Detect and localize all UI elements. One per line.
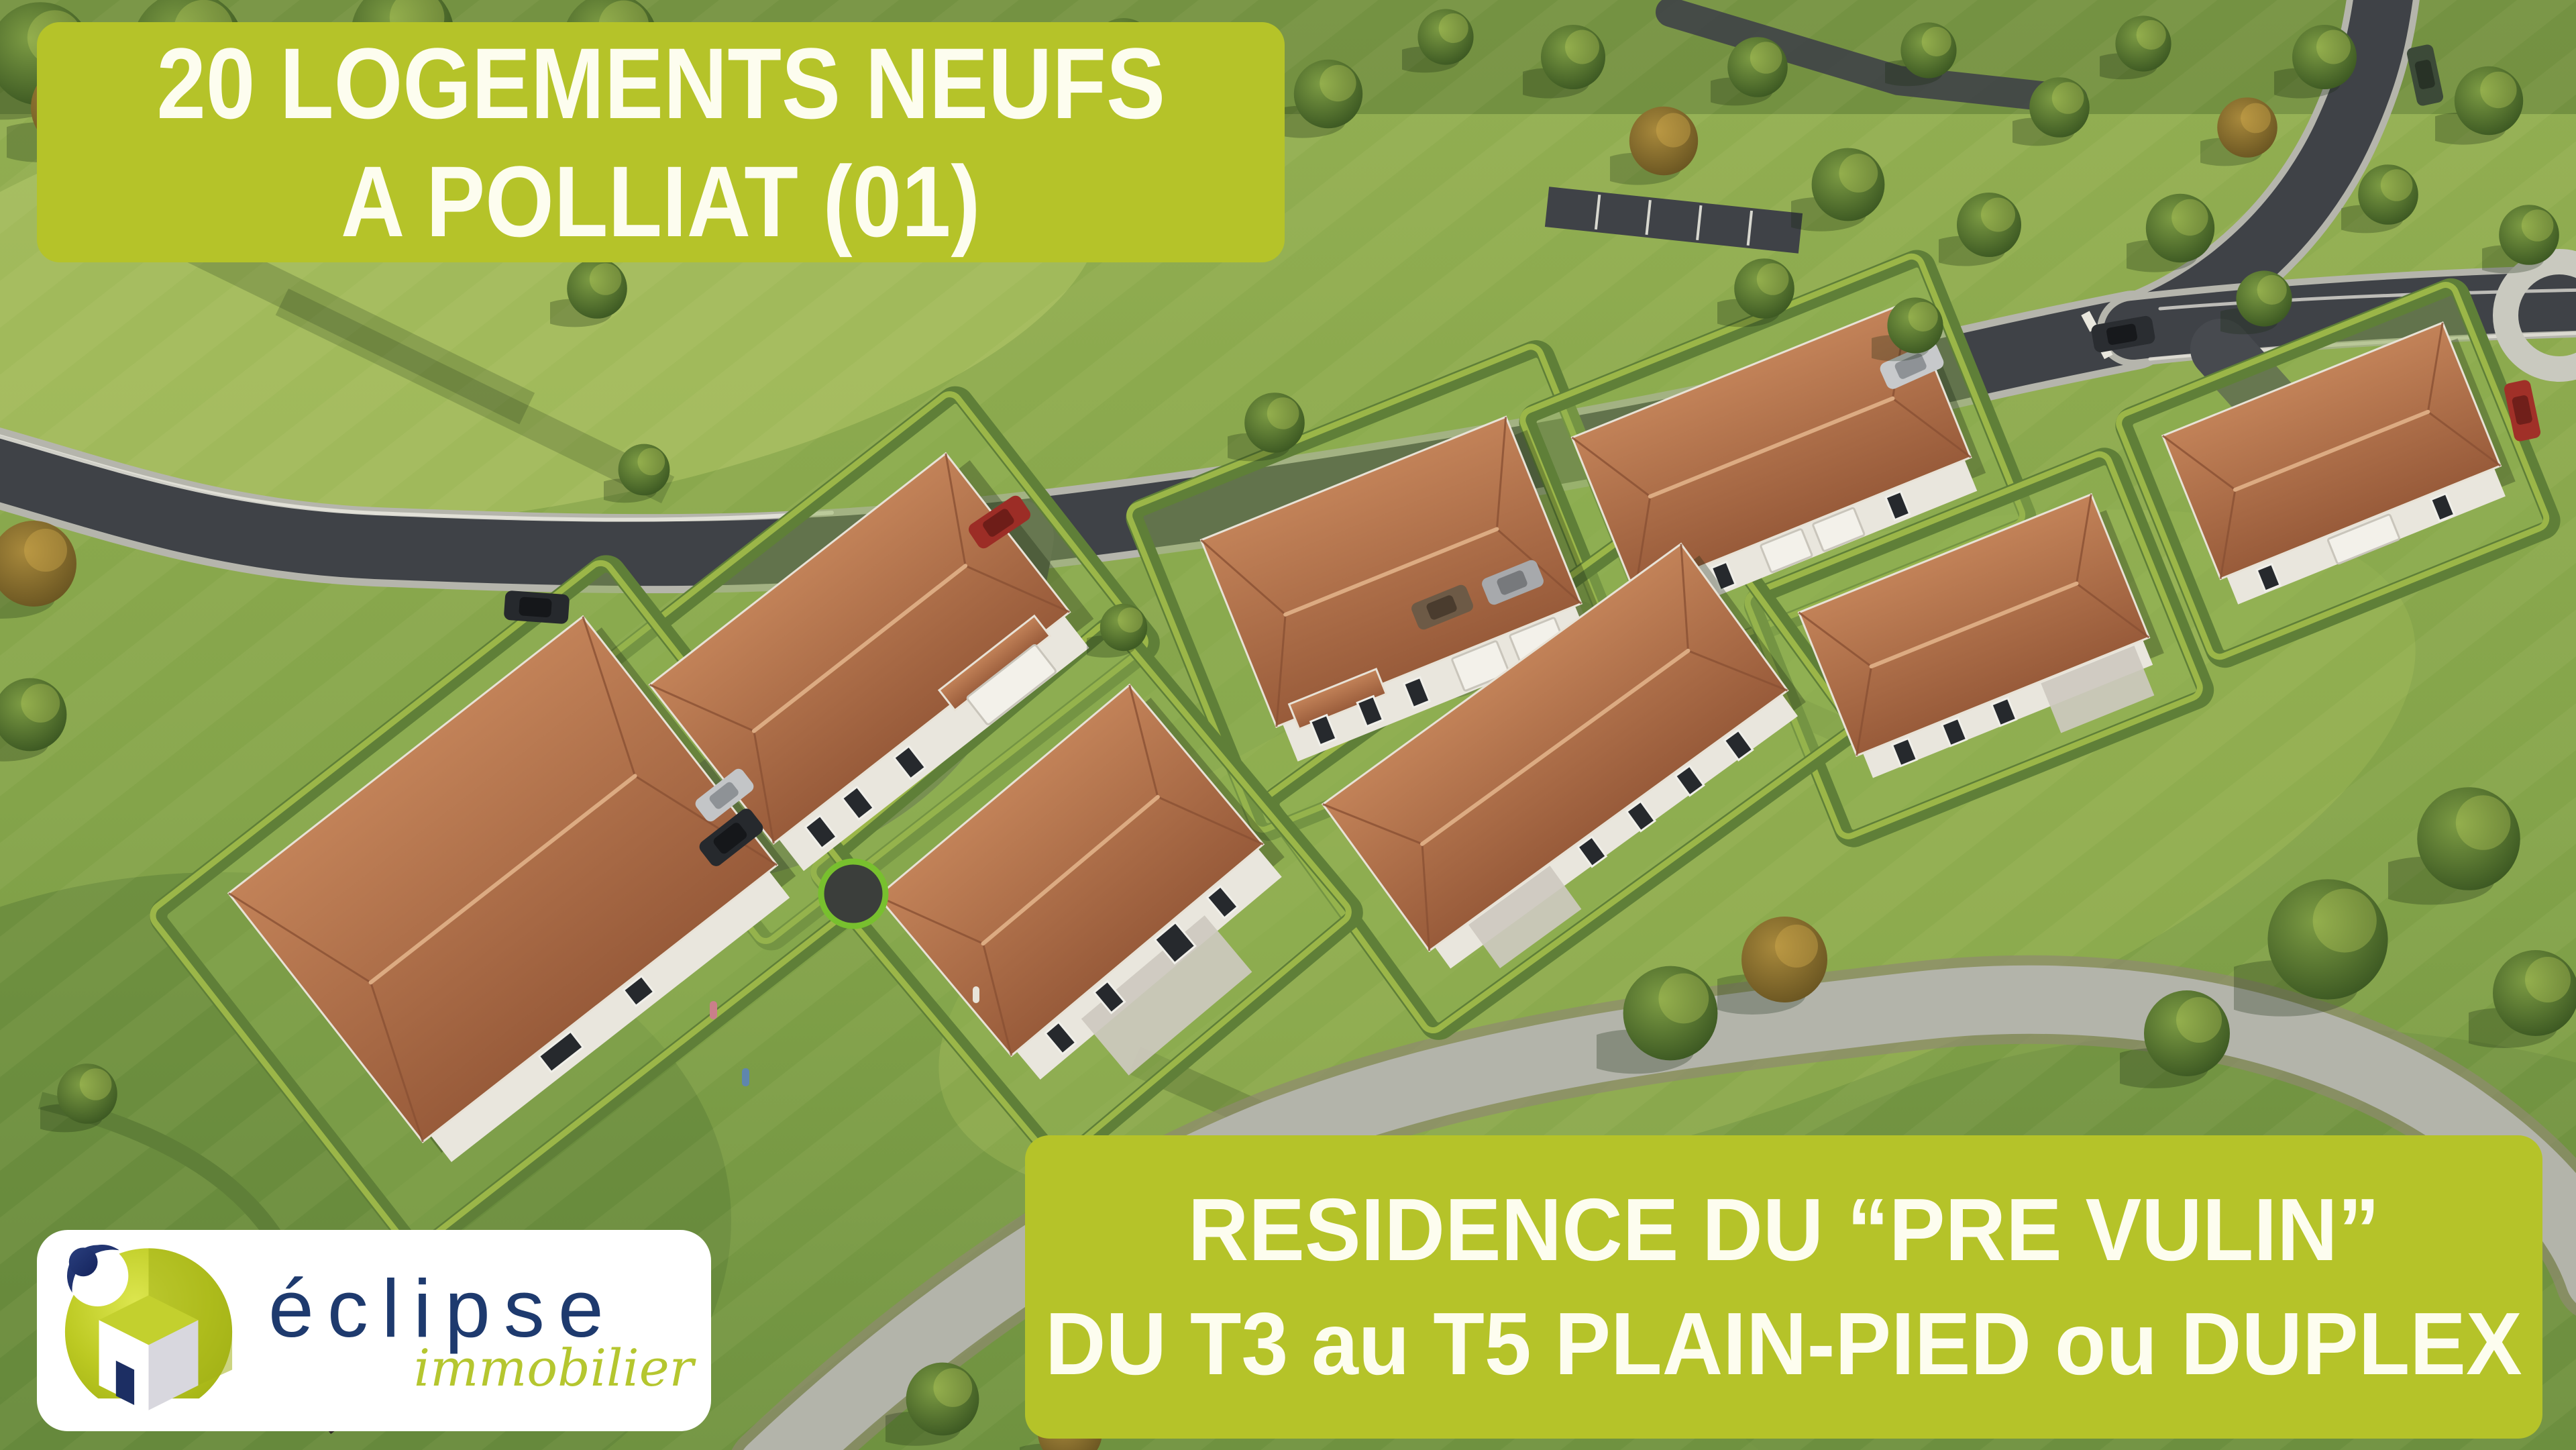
top-banner: 20 LOGEMENTS NEUFS A POLLIAT (01) (37, 22, 1285, 262)
logo-brand: éclipse (268, 1267, 694, 1349)
logo-card: éclipse immobilier (37, 1230, 711, 1431)
top-banner-line-1: 20 LOGEMENTS NEUFS (156, 27, 1165, 140)
logo-text: éclipse immobilier (251, 1267, 711, 1394)
bottom-banner-line-2: DU T3 au T5 PLAIN-PIED ou DUPLEX (1045, 1294, 2522, 1394)
eclipse-logo-icon (46, 1233, 251, 1429)
bottom-banner: RESIDENCE DU “PRE VULIN” DU T3 au T5 PLA… (1025, 1135, 2542, 1439)
car-dark-sedan-west (504, 590, 570, 625)
bottom-banner-line-1: RESIDENCE DU “PRE VULIN” (1188, 1180, 2380, 1280)
top-banner-line-2: A POLLIAT (01) (341, 145, 980, 258)
promo-poster: 20 LOGEMENTS NEUFS A POLLIAT (01) RESIDE… (0, 0, 2576, 1450)
logo-tagline: immobilier (414, 1343, 694, 1394)
trampoline (821, 862, 885, 926)
